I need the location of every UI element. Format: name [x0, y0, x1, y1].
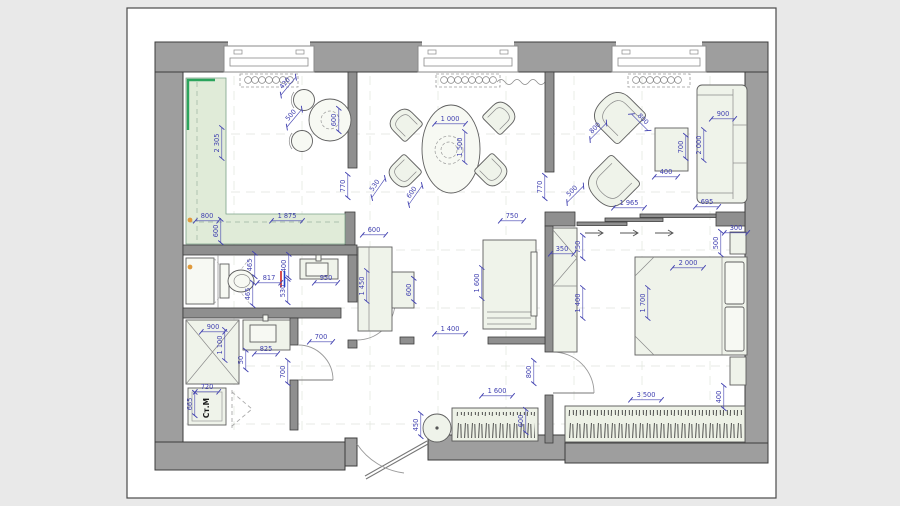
svg-text:600: 600 — [368, 226, 381, 234]
svg-text:750: 750 — [506, 212, 519, 220]
pouf — [423, 414, 451, 442]
svg-text:1 965: 1 965 — [620, 199, 639, 207]
svg-text:1 000: 1 000 — [441, 115, 460, 123]
svg-text:750: 750 — [574, 241, 582, 254]
svg-text:600: 600 — [330, 114, 338, 127]
svg-text:1 400: 1 400 — [441, 325, 460, 333]
utility-marker — [188, 265, 193, 270]
washing-machine-label: Ст.М — [202, 398, 211, 418]
svg-text:800: 800 — [201, 212, 214, 220]
svg-text:700: 700 — [677, 141, 685, 154]
bedroom-wardrobe — [565, 406, 745, 442]
sofa — [697, 85, 747, 203]
svg-text:1 450: 1 450 — [358, 277, 366, 296]
svg-text:3 500: 3 500 — [637, 391, 656, 399]
svg-text:500: 500 — [712, 237, 720, 250]
floor-plan-svg: Ст.М 2 3058001 8756007704205006001 0001 … — [0, 0, 900, 506]
svg-text:465: 465 — [246, 259, 254, 272]
svg-text:2 000: 2 000 — [679, 259, 698, 267]
floor-plan-page: Ст.М 2 3058001 8756007704205006001 0001 … — [0, 0, 900, 506]
svg-text:900: 900 — [717, 110, 730, 118]
pillow — [725, 262, 744, 304]
svg-text:900: 900 — [207, 323, 220, 331]
svg-text:800: 800 — [525, 366, 533, 379]
svg-text:465: 465 — [244, 288, 252, 301]
nightstand — [730, 357, 746, 385]
svg-text:400: 400 — [280, 260, 288, 273]
svg-text:2 000: 2 000 — [695, 136, 703, 155]
svg-text:300: 300 — [730, 224, 743, 232]
svg-text:1 600: 1 600 — [488, 387, 507, 395]
svg-text:400: 400 — [660, 168, 673, 176]
svg-text:600: 600 — [517, 415, 525, 428]
svg-text:825: 825 — [260, 345, 273, 353]
svg-text:600: 600 — [212, 225, 220, 238]
svg-text:950: 950 — [320, 274, 333, 282]
svg-text:665: 665 — [186, 398, 194, 411]
svg-text:817: 817 — [263, 274, 276, 282]
svg-text:450: 450 — [412, 419, 420, 432]
svg-text:530: 530 — [279, 285, 287, 298]
pillow — [725, 307, 744, 351]
svg-text:770: 770 — [536, 181, 544, 194]
svg-text:695: 695 — [701, 198, 714, 206]
svg-text:400: 400 — [715, 391, 723, 404]
svg-text:2 305: 2 305 — [213, 134, 221, 153]
bed — [635, 257, 747, 355]
nightstand — [730, 232, 746, 254]
svg-text:1 400: 1 400 — [574, 294, 582, 313]
svg-text:720: 720 — [201, 383, 214, 391]
svg-text:50: 50 — [237, 356, 245, 364]
svg-text:1 100: 1 100 — [216, 336, 224, 355]
utility-marker — [188, 218, 193, 223]
svg-text:700: 700 — [315, 333, 328, 341]
hall-wardrobe — [483, 240, 537, 329]
svg-text:600: 600 — [405, 284, 413, 297]
svg-text:1 600: 1 600 — [473, 274, 481, 293]
svg-text:1 875: 1 875 — [278, 212, 297, 220]
svg-text:700: 700 — [279, 366, 287, 379]
svg-text:770: 770 — [339, 180, 347, 193]
svg-text:1 700: 1 700 — [639, 294, 647, 313]
svg-text:1 500: 1 500 — [456, 138, 464, 157]
svg-text:350: 350 — [556, 245, 569, 253]
